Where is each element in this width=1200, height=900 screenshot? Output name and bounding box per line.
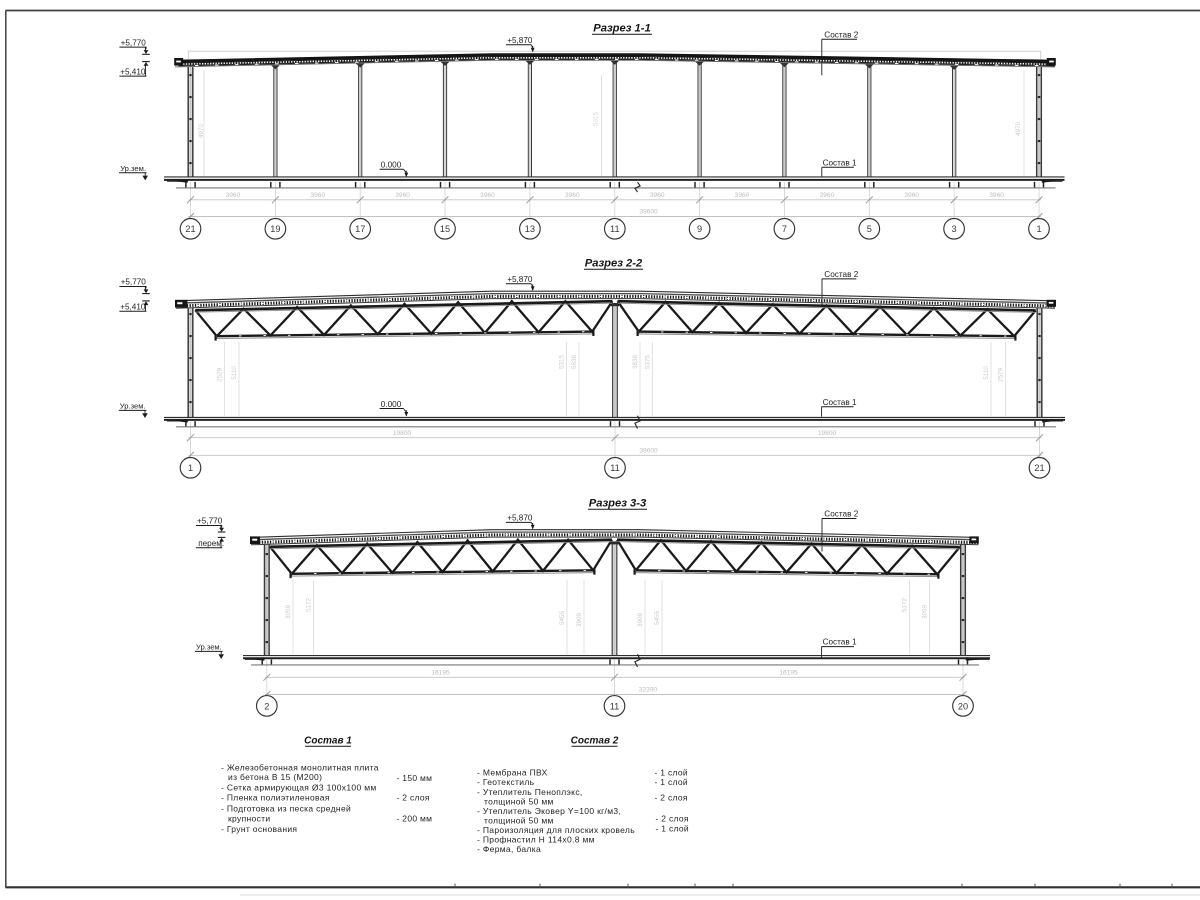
svg-text:16195: 16195 [779,670,798,677]
svg-text:- 2 слоя: - 2 слоя [656,814,689,824]
svg-text:+5,870: +5,870 [507,275,533,284]
svg-text:4970: 4970 [1015,122,1022,137]
svg-text:- 1 слой: - 1 слой [655,768,688,778]
svg-text:5455: 5455 [559,611,566,626]
svg-text:5315: 5315 [558,355,565,370]
svg-text:7: 7 [782,224,787,234]
svg-text:16195: 16195 [431,670,450,677]
svg-text:3960: 3960 [650,192,665,199]
svg-text:39600: 39600 [639,209,658,216]
svg-text:Ур.зем.: Ур.зем. [120,164,146,173]
svg-text:21: 21 [185,224,195,234]
svg-text:3960: 3960 [904,192,919,199]
svg-text:толщиной 50 мм: толщиной 50 мм [484,796,554,806]
svg-text:0.000: 0.000 [381,161,402,170]
svg-text:19: 19 [270,224,280,234]
svg-text:5172: 5172 [901,598,908,613]
svg-text:- Железобетонная монолитная п: - Железобетонная монолитная плита [221,763,379,773]
svg-text:+5,770: +5,770 [121,278,147,287]
svg-text:15: 15 [440,224,450,234]
svg-text:19800: 19800 [818,430,837,437]
svg-text:Разрез 3-3: Разрез 3-3 [589,498,647,510]
svg-text:3909: 3909 [637,613,644,628]
svg-text:- Пароизоляция для плоских кро: - Пароизоляция для плоских кровель [477,825,635,835]
svg-text:3059: 3059 [285,605,292,620]
svg-text:+5,410: +5,410 [120,67,146,76]
svg-text:- 1 слой: - 1 слой [655,777,688,787]
svg-text:5638: 5638 [571,355,578,370]
svg-text:2529: 2529 [216,368,223,383]
svg-text:3: 3 [952,224,957,234]
svg-text:4970: 4970 [198,124,205,139]
svg-text:Состав 2: Состав 2 [824,30,858,39]
svg-text:- 200 мм: - 200 мм [397,814,433,824]
svg-text:Состав 1: Состав 1 [304,736,352,747]
svg-text:Состав 2: Состав 2 [824,270,858,279]
svg-text:- Ферма, балка: - Ферма, балка [477,844,541,854]
svg-text:3960: 3960 [989,192,1004,199]
svg-text:+5,870: +5,870 [507,36,533,45]
svg-text:1: 1 [1036,224,1041,234]
svg-text:3960: 3960 [735,192,750,199]
svg-text:- 150 мм: - 150 мм [397,773,433,783]
svg-text:5375: 5375 [644,355,651,370]
svg-text:2529: 2529 [997,368,1004,383]
svg-text:- Грунт основания: - Грунт основания [221,824,297,834]
svg-text:- Профнастил Н 114x0.8 мм: - Профнастил Н 114x0.8 мм [477,834,595,844]
svg-text:11: 11 [610,463,620,473]
svg-text:17: 17 [355,224,365,234]
svg-text:- Геотекстиль: - Геотекстиль [477,777,535,787]
svg-text:+5,870: +5,870 [507,514,533,523]
svg-text:- 1 слой: - 1 слой [656,823,689,833]
svg-text:3960: 3960 [395,192,410,199]
svg-text:5110: 5110 [983,366,990,380]
svg-text:3960: 3960 [565,192,580,199]
svg-text:Состав 1: Состав 1 [823,158,857,167]
svg-text:Разрез 2-2: Разрез 2-2 [585,258,643,270]
svg-text:13: 13 [525,224,535,234]
svg-text:11: 11 [610,224,620,234]
svg-text:3960: 3960 [480,192,495,199]
svg-text:21: 21 [1034,463,1044,473]
svg-text:толщиной 50 мм: толщиной 50 мм [484,815,554,825]
svg-text:+5,770: +5,770 [197,517,223,526]
svg-text:0.000: 0.000 [381,400,402,409]
svg-text:Ур.зем.: Ур.зем. [120,402,146,411]
svg-text:из бетона В 15 (М200): из бетона В 15 (М200) [228,772,322,782]
svg-text:5: 5 [867,224,872,234]
svg-text:5172: 5172 [305,598,312,613]
svg-text:9: 9 [697,224,702,234]
svg-text:- Мембрана ПВХ: - Мембрана ПВХ [477,768,548,778]
svg-text:1: 1 [188,463,193,473]
svg-text:39600: 39600 [639,447,658,454]
svg-text:Состав 1: Состав 1 [823,638,857,647]
svg-text:3909: 3909 [576,613,583,628]
svg-text:- Подготовка из песка средней: - Подготовка из песка средней [221,804,351,814]
svg-text:Ур.зем.: Ур.зем. [196,643,222,652]
svg-text:- Пленка полиэтиленовая: - Пленка полиэтиленовая [221,793,330,803]
svg-text:3960: 3960 [820,192,835,199]
svg-text:3960: 3960 [310,192,325,199]
svg-text:11: 11 [610,701,620,711]
svg-text:2: 2 [264,701,269,711]
svg-text:19800: 19800 [393,430,412,437]
svg-text:5315: 5315 [593,112,600,127]
svg-text:Состав 2: Состав 2 [824,510,858,519]
svg-text:3838: 3838 [632,355,639,370]
svg-text:3960: 3960 [226,192,241,199]
svg-text:32390: 32390 [639,687,658,694]
svg-text:крупности: крупности [228,814,271,824]
svg-text:- 2 слоя: - 2 слоя [397,793,430,803]
svg-text:+5,770: +5,770 [121,38,147,47]
svg-text:+5,410: +5,410 [120,302,146,311]
svg-text:5110: 5110 [231,366,238,380]
svg-text:Состав 1: Состав 1 [823,398,857,407]
svg-text:- 2 слоя: - 2 слоя [655,793,688,803]
svg-text:20: 20 [958,701,968,711]
svg-text:5455: 5455 [654,611,661,626]
svg-text:Разрез 1-1: Разрез 1-1 [593,23,650,35]
svg-text:Состав 2: Состав 2 [571,736,619,747]
svg-text:- Сетка армирующая Ø3 100x100: - Сетка армирующая Ø3 100x100 мм [221,782,377,792]
svg-text:3059: 3059 [921,605,928,620]
